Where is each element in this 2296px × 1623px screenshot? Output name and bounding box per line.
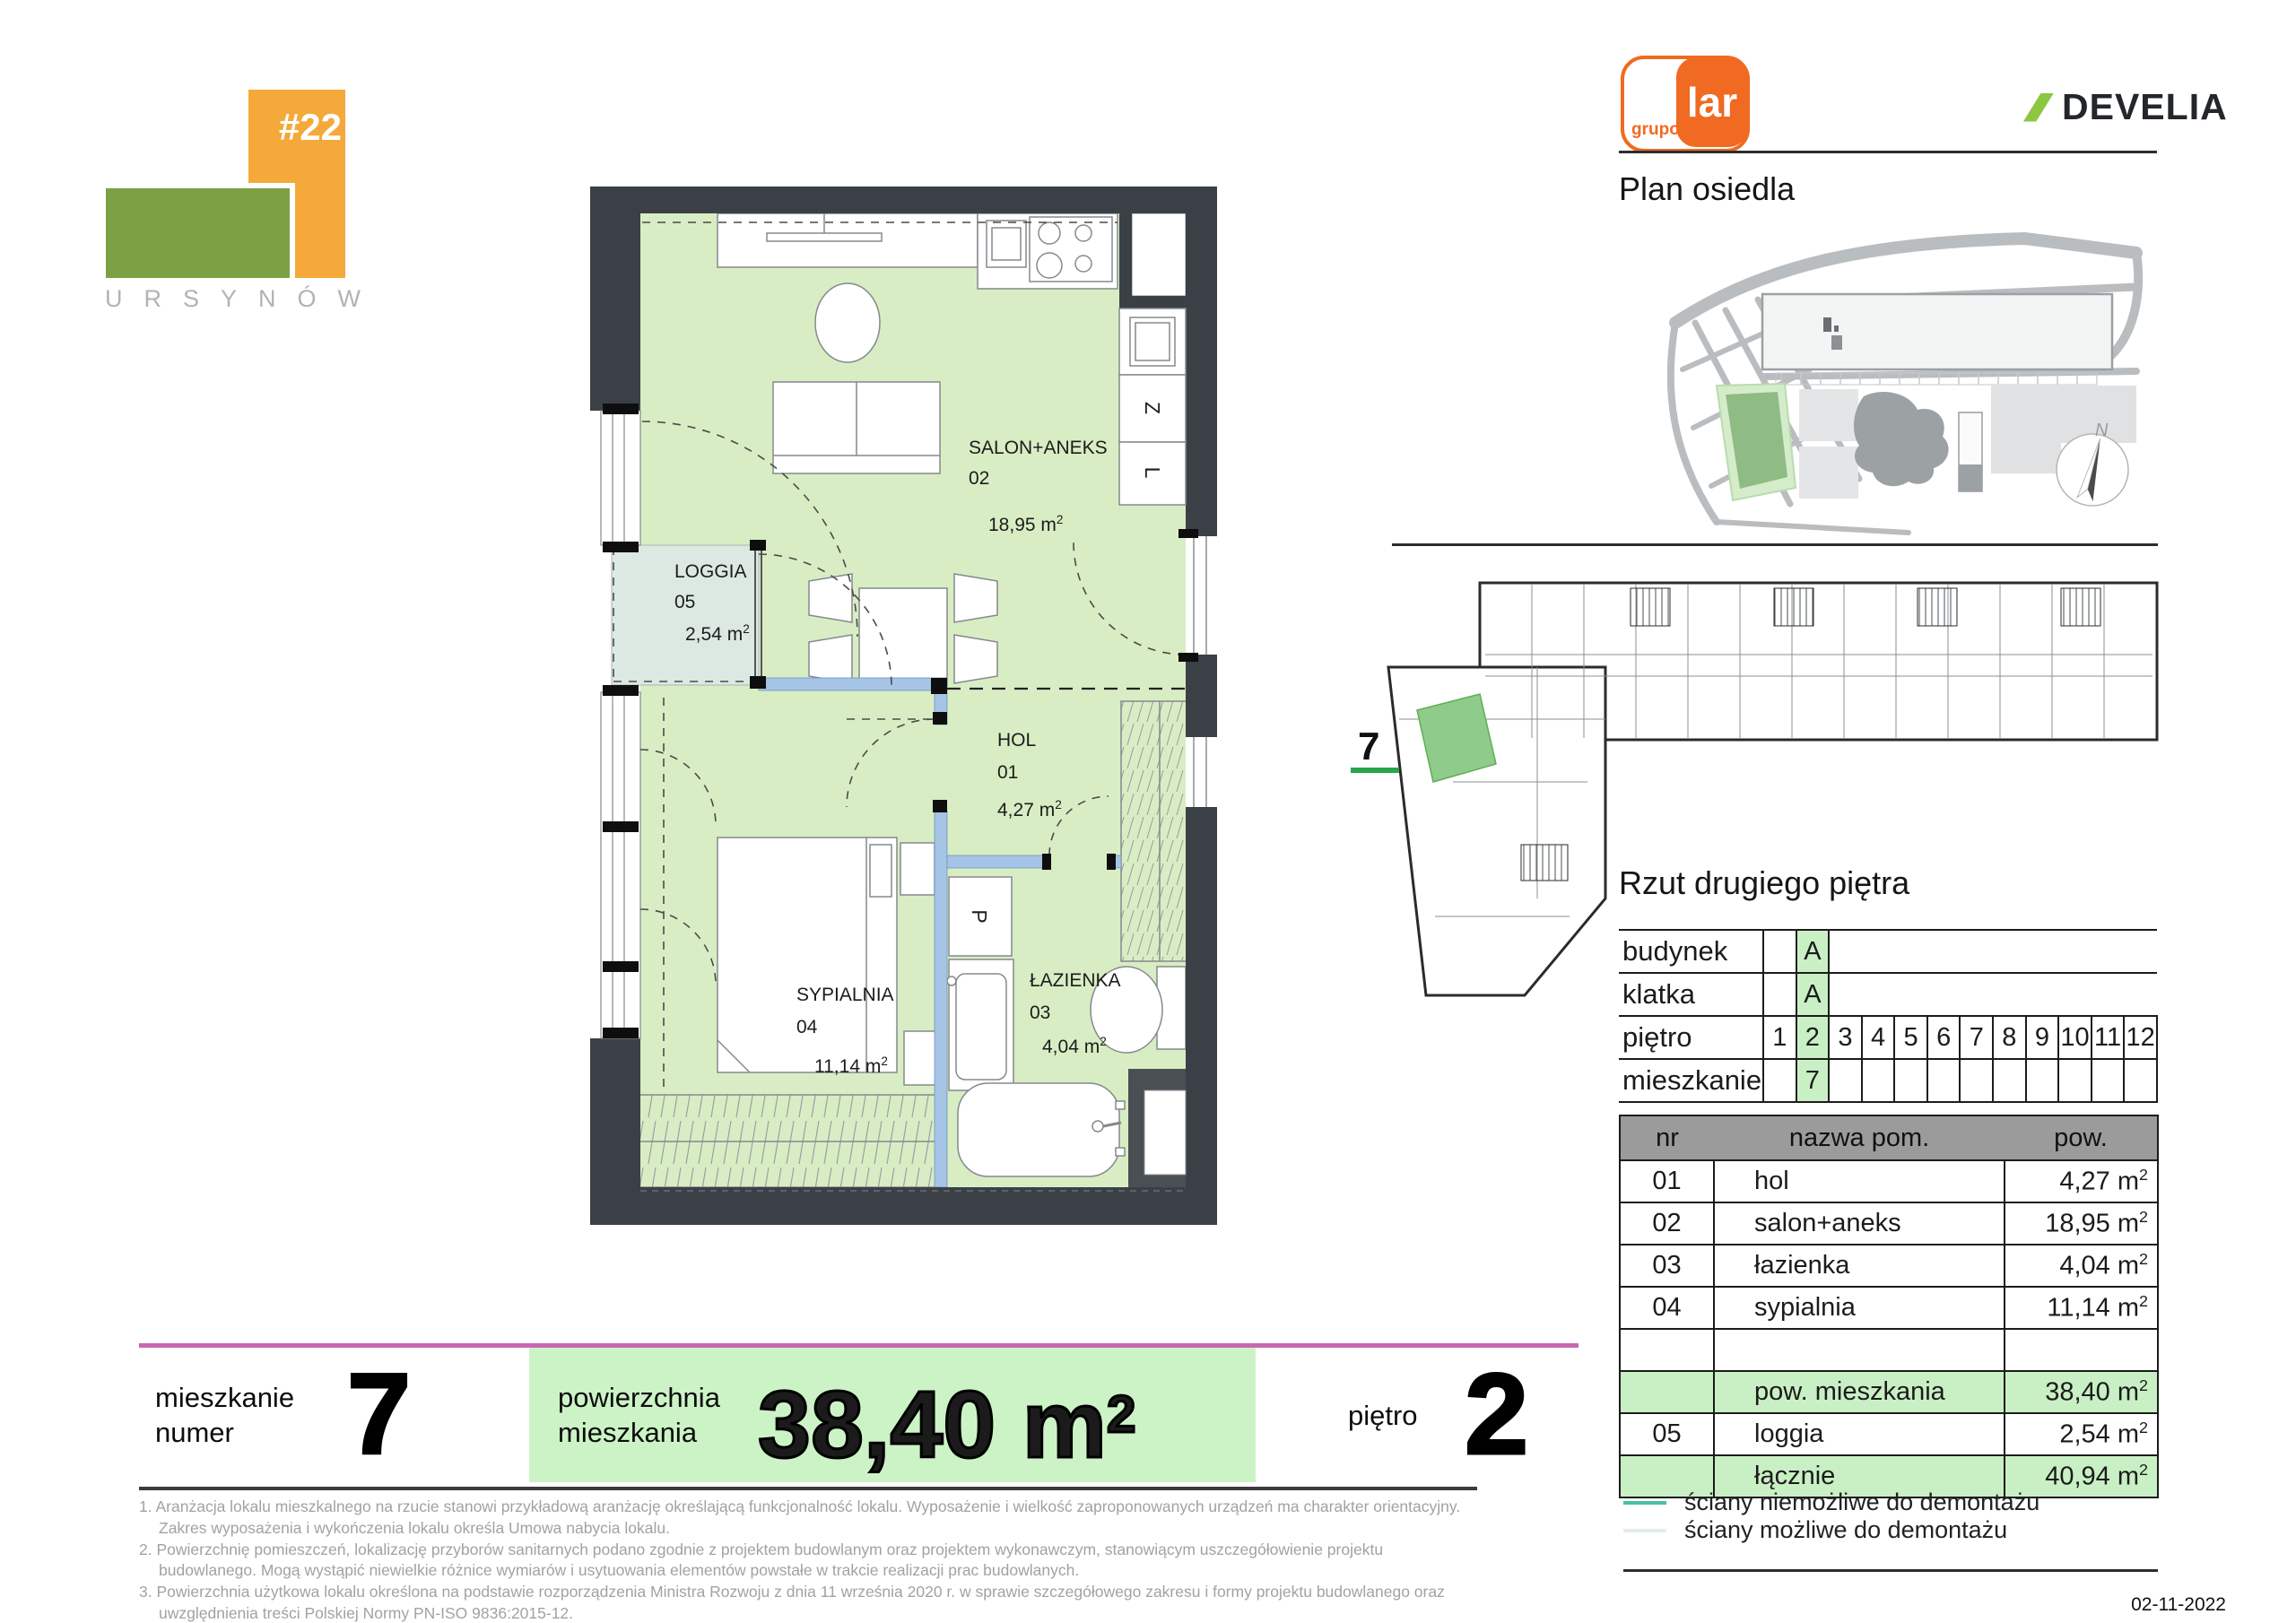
logo-green-block: [106, 188, 290, 278]
non-demountable-wall-swatch: [1623, 1501, 1666, 1505]
lar-wordmark: lar: [1676, 57, 1748, 147]
table-row: 05loggia2,54 m2: [1620, 1413, 2158, 1455]
staircase-value: A: [1796, 973, 1830, 1016]
chair-icon: [954, 574, 997, 622]
room-label: LOGGIA: [674, 561, 747, 582]
apartment-marker-number: 7: [1358, 725, 1379, 768]
walls-legend: ściany niemożliwe do demontażu ściany mo…: [1623, 1488, 2039, 1544]
area-value: 38,40 m2: [758, 1348, 1135, 1492]
wall-niche: [1132, 213, 1186, 296]
room-label: SYPIALNIA: [796, 985, 894, 1005]
footnote: 2. Powierzchnię pomieszczeń, lokalizację…: [139, 1540, 1477, 1583]
chair-icon: [954, 635, 997, 683]
svg-text:03: 03: [1030, 1002, 1050, 1023]
apartment-card-page: #22 URSYNÓW lar grupo DEVELIA Plan osied…: [0, 0, 2296, 1623]
stove-icon: [1030, 217, 1112, 282]
selected-floor-cell: 2: [1796, 1016, 1830, 1059]
chair-icon: [809, 574, 852, 622]
floor-row: piętro 1 2 3 4 5 6 7 8 9 10 11 12: [1619, 1016, 2157, 1059]
logo-number: #22: [248, 106, 342, 149]
compass-north-label: N: [2095, 421, 2109, 440]
table-row: [1620, 1329, 2158, 1371]
apartment-number-value: 7: [347, 1348, 411, 1482]
floor-value: 2: [1465, 1348, 1528, 1482]
svg-text:4,27 m2: 4,27 m2: [997, 798, 1062, 820]
room-label: SALON+ANEKS: [969, 438, 1108, 458]
room-label: ŁAZIENKA: [1030, 970, 1121, 991]
grupo-lar-logo: lar grupo: [1621, 56, 1750, 152]
footnotes-block: 1. Aranżacja lokalu mieszkalnego na rzuc…: [139, 1487, 1477, 1623]
dishwasher-letter: Z: [1141, 402, 1164, 414]
divider: [1623, 1569, 2158, 1572]
unit-info-table: budynek A klatka A piętro 1 2 3 4 5 6 7 …: [1619, 929, 2158, 1103]
develia-wordmark: DEVELIA: [2062, 86, 2228, 128]
floor-label: piętro: [1348, 1398, 1418, 1433]
apartment-number-label: mieszkanie numer: [155, 1380, 294, 1450]
nightstand-icon: [904, 1031, 936, 1085]
apartment-row: mieszkanie 7: [1619, 1059, 2157, 1102]
demountable-wall-swatch: [1623, 1529, 1666, 1532]
area-label: powierzchnia mieszkania: [558, 1380, 720, 1450]
table-row-total-area: pow. mieszkania38,40 m2: [1620, 1371, 2158, 1413]
svg-text:01: 01: [997, 762, 1018, 783]
stair-window-opening: [1186, 737, 1217, 807]
apartment-value: 7: [1796, 1059, 1830, 1102]
svg-text:4,04 m2: 4,04 m2: [1042, 1035, 1107, 1057]
washer-letter: P: [968, 909, 991, 923]
divider: [1619, 151, 2157, 153]
pillow-icon: [870, 845, 891, 897]
footnotes-top-rule: [139, 1487, 1477, 1490]
fridge-letter: L: [1141, 467, 1164, 479]
park-pond: [1854, 392, 1949, 486]
svg-text:05: 05: [674, 592, 695, 612]
nightstand-icon: [900, 843, 935, 895]
apartment-floor-plan: SALON+ANEKS 02 18,95 m2 LOGGIA 05 2,54 m…: [583, 187, 1222, 1227]
divider: [1392, 543, 2158, 546]
table-row: 01hol4,27 m2: [1620, 1160, 2158, 1202]
chair-icon: [809, 635, 852, 683]
summary-bar: mieszkanie numer 7 powierzchnia mieszkan…: [139, 1343, 1578, 1482]
table-row: 04sypialnia11,14 m2: [1620, 1287, 2158, 1329]
floor-view-title: Rzut drugiego piętra: [1619, 864, 1909, 902]
svg-text:2,54 m2: 2,54 m2: [685, 622, 750, 645]
dining-table-icon: [859, 588, 947, 685]
rooms-table: nr nazwa pom. pow. 01hol4,27 m2 02salon+…: [1619, 1115, 2159, 1498]
svg-text:18,95 m2: 18,95 m2: [988, 513, 1063, 535]
legend-item: ściany możliwe do demontażu: [1623, 1516, 2039, 1544]
bedroom-window-icon: [601, 692, 640, 1038]
svg-text:02: 02: [969, 468, 989, 489]
legend-item: ściany niemożliwe do demontażu: [1623, 1488, 2039, 1516]
marker-underline: [1351, 768, 1399, 773]
staircase-row: klatka A: [1619, 973, 2157, 1016]
footnote: 3. Powierzchnia użytkowa lokalu określon…: [139, 1582, 1477, 1623]
footnote: 1. Aranżacja lokalu mieszkalnego na rzuc…: [139, 1497, 1477, 1540]
svg-text:11,14 m2: 11,14 m2: [814, 1055, 888, 1077]
entrance-door-opening: [1186, 536, 1217, 655]
salon-window-icon: [601, 411, 640, 545]
develia-logo: DEVELIA: [2023, 86, 2228, 128]
table-row: 02salon+aneks18,95 m2: [1620, 1202, 2158, 1245]
svg-text:04: 04: [796, 1017, 818, 1037]
develia-triangle-icon: [2023, 93, 2054, 122]
grupo-wordmark: grupo: [1631, 120, 1680, 140]
logo-project-name: URSYNÓW: [105, 285, 382, 313]
main-building: [1762, 294, 2112, 369]
table-row: 03łazienka4,04 m2: [1620, 1245, 2158, 1287]
estate-site-map: N: [1639, 217, 2158, 547]
building-row: budynek A: [1619, 930, 2157, 973]
estate-plan-title: Plan osiedla: [1619, 170, 1795, 208]
building-value: A: [1796, 930, 1830, 973]
document-date: 02-11-2022: [2131, 1594, 2226, 1616]
round-table-icon: [815, 283, 880, 362]
rooms-header-row: nr nazwa pom. pow.: [1620, 1115, 2158, 1160]
area-highlight-box: powierzchnia mieszkania 38,40 m2: [529, 1348, 1256, 1482]
room-label: HOL: [997, 730, 1036, 751]
